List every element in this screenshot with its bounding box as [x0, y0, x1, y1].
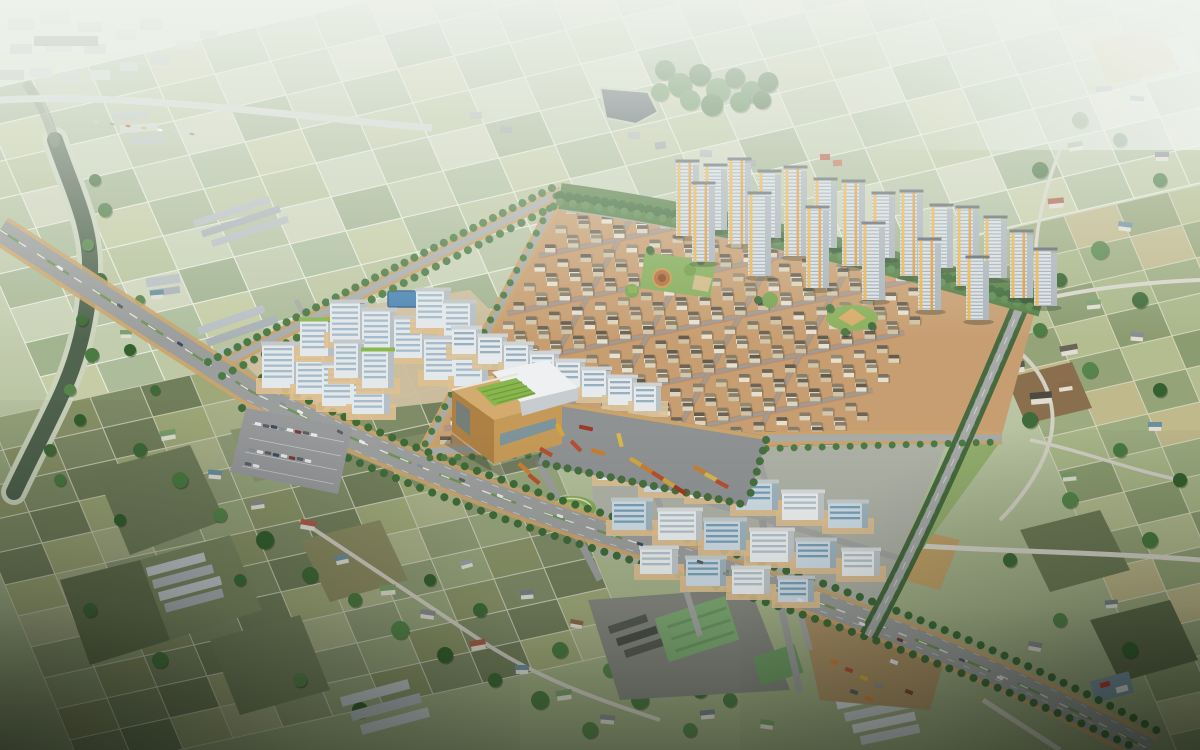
- vignette: [0, 400, 1200, 750]
- scene-canvas: [0, 0, 1200, 750]
- aerial-city-masterplan-rendering: [0, 0, 1200, 750]
- atmosphere-haze: [0, 0, 1200, 340]
